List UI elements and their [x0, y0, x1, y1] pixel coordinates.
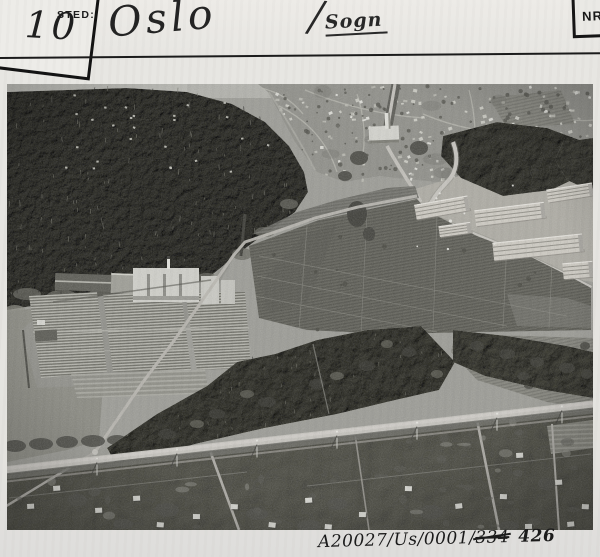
aerial-photo: [7, 84, 593, 530]
vignette: [7, 84, 593, 530]
nr-label: NR.: [582, 8, 600, 24]
nr-box: NR.: [571, 0, 600, 38]
district-name: Sogn: [325, 8, 388, 36]
place-handwriting: Oslo: [106, 0, 218, 47]
district-slash: /: [307, 0, 325, 38]
archive-ref-struck: 334: [475, 527, 509, 548]
archive-ref-prefix: A20027/Us/0001/: [318, 528, 476, 552]
sted-label: STED:: [57, 9, 95, 21]
archive-ref-number: 426: [518, 526, 556, 547]
district-handwriting: /Sogn: [310, 0, 387, 35]
archive-card: 10 STED: Oslo /Sogn NR.: [0, 0, 600, 557]
